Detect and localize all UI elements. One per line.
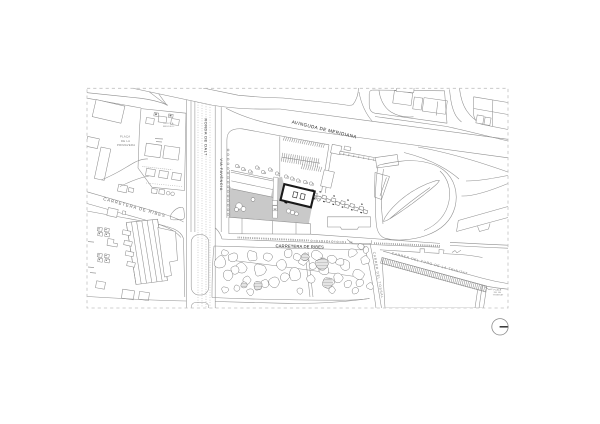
svg-text:VIA FAVÈNCIA: VIA FAVÈNCIA: [219, 159, 224, 191]
svg-text:PLAÇA: PLAÇA: [120, 135, 130, 139]
svg-text:ESCOLA: ESCOLA: [164, 122, 174, 125]
svg-text:PRIMAVERA: PRIMAVERA: [117, 143, 135, 147]
svg-text:BRESSOL: BRESSOL: [163, 126, 175, 128]
svg-text:RONDA DE DALT: RONDA DE DALT: [204, 119, 208, 157]
svg-text:DE LA: DE LA: [121, 139, 130, 143]
svg-text:TRINITAT: TRINITAT: [493, 294, 504, 297]
